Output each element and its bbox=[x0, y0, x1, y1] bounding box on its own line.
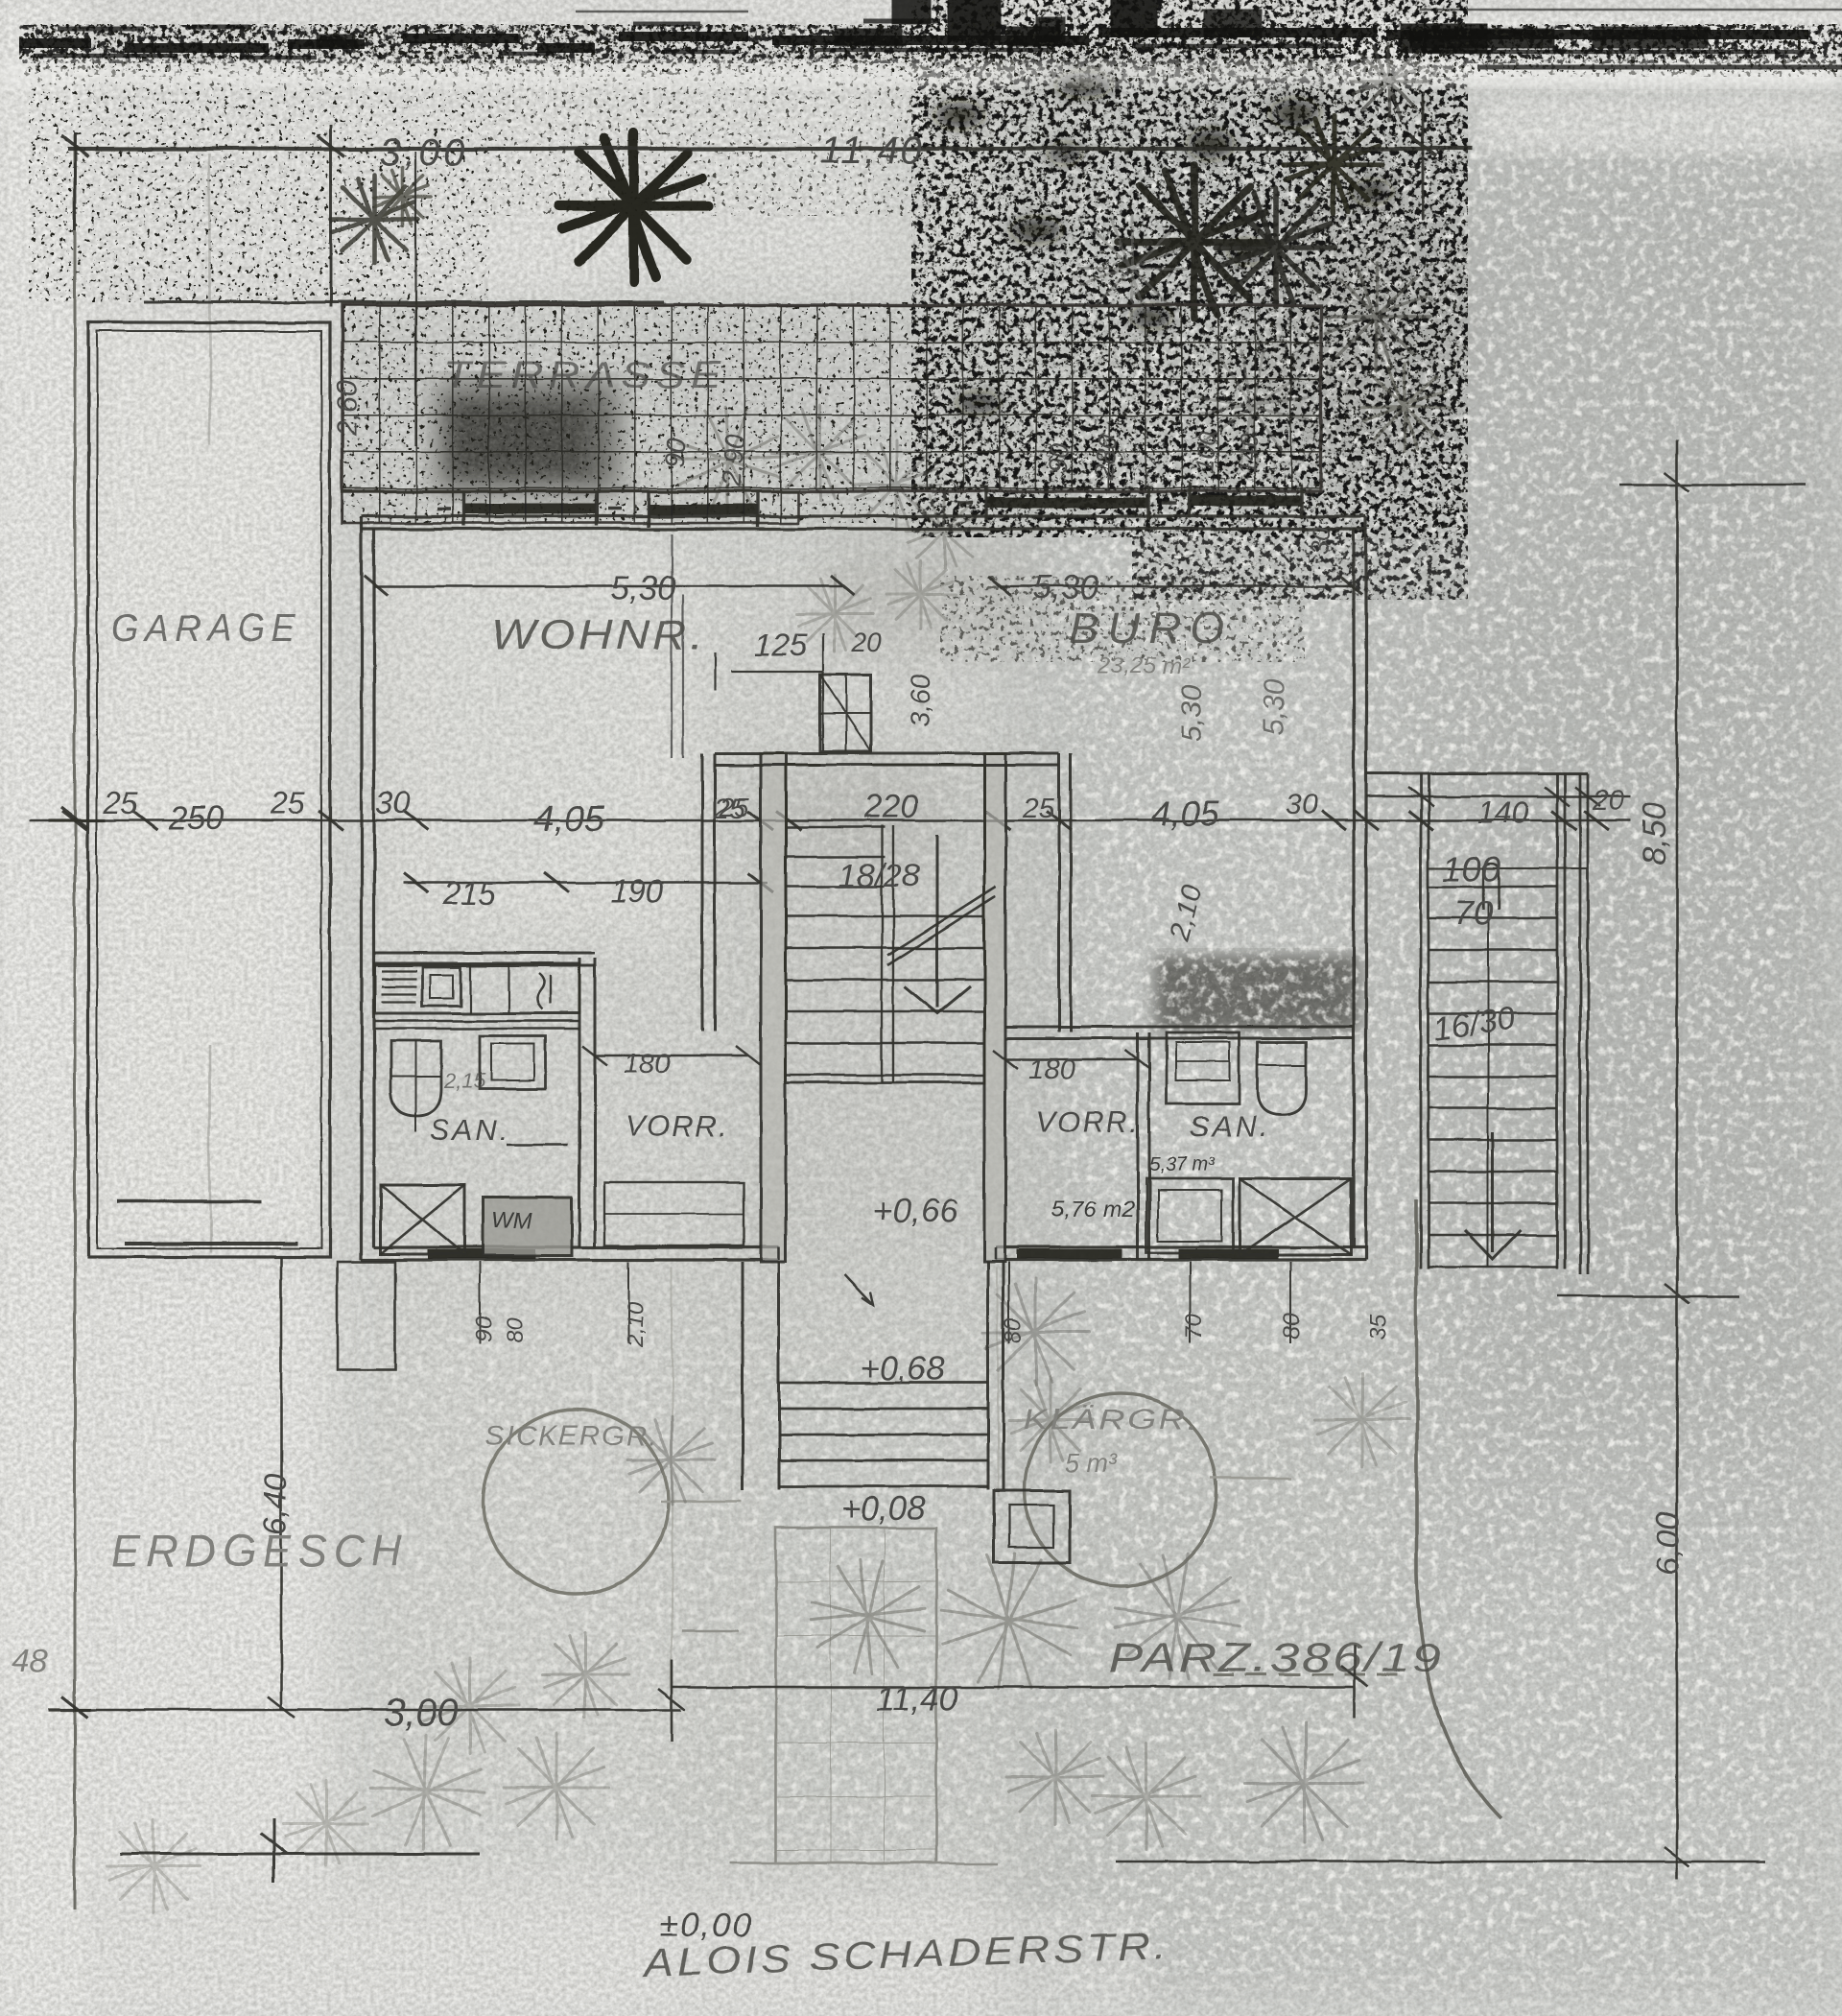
svg-text:WOHNR.: WOHNR. bbox=[491, 612, 706, 658]
svg-text:25: 25 bbox=[1022, 793, 1055, 824]
svg-text:25: 25 bbox=[103, 786, 138, 820]
svg-text:140: 140 bbox=[1477, 795, 1529, 830]
svg-text:KLÄRGR.: KLÄRGR. bbox=[1023, 1404, 1200, 1435]
svg-text:125: 125 bbox=[754, 628, 808, 663]
svg-text:BÜRO: BÜRO bbox=[1069, 604, 1234, 652]
svg-text:5,30: 5,30 bbox=[610, 570, 676, 607]
svg-text:3,60: 3,60 bbox=[905, 675, 934, 727]
svg-text:30: 30 bbox=[1286, 789, 1318, 820]
svg-text:100: 100 bbox=[1443, 849, 1500, 889]
svg-text:5,30: 5,30 bbox=[1033, 569, 1099, 606]
svg-text:3,00: 3,00 bbox=[379, 131, 469, 174]
svg-text:25: 25 bbox=[719, 792, 750, 821]
svg-text:6,00: 6,00 bbox=[1650, 1512, 1687, 1576]
svg-text:70: 70 bbox=[1181, 1314, 1207, 1340]
svg-text:220: 220 bbox=[863, 789, 919, 825]
svg-text:4,05: 4,05 bbox=[1151, 794, 1219, 833]
svg-text:VORR.: VORR. bbox=[626, 1109, 729, 1143]
svg-text:GARAGE: GARAGE bbox=[111, 607, 301, 650]
svg-text:18/28: 18/28 bbox=[838, 858, 920, 894]
svg-text:180: 180 bbox=[624, 1049, 670, 1079]
svg-text:23,25 m²: 23,25 m² bbox=[1098, 653, 1191, 679]
svg-text:11,40: 11,40 bbox=[820, 130, 923, 172]
svg-text:+0,68: +0,68 bbox=[860, 1350, 945, 1387]
svg-text:30: 30 bbox=[376, 786, 411, 820]
svg-text:6,40: 6,40 bbox=[257, 1473, 293, 1535]
svg-text:2,90: 2,90 bbox=[717, 433, 751, 488]
svg-text:2,60: 2,60 bbox=[332, 380, 364, 438]
svg-text:190: 190 bbox=[610, 873, 664, 909]
svg-text:SAN.: SAN. bbox=[1190, 1109, 1270, 1143]
svg-text:5,30: 5,30 bbox=[1176, 684, 1208, 741]
svg-text:30: 30 bbox=[1305, 525, 1335, 556]
svg-text:8,50: 8,50 bbox=[1637, 802, 1673, 866]
svg-text:90: 90 bbox=[471, 1316, 497, 1341]
svg-text:3,00: 3,00 bbox=[384, 1692, 459, 1734]
svg-text:11,40: 11,40 bbox=[876, 1680, 958, 1718]
svg-text:+0,66: +0,66 bbox=[873, 1193, 958, 1230]
svg-text:80: 80 bbox=[1279, 1314, 1305, 1340]
svg-text:5,30: 5,30 bbox=[1259, 678, 1290, 735]
svg-text:4,05: 4,05 bbox=[533, 799, 605, 840]
svg-text:TERRASSE: TERRASSE bbox=[443, 354, 726, 396]
svg-text:2,10: 2,10 bbox=[623, 1302, 649, 1348]
svg-text:SAN.: SAN. bbox=[430, 1113, 510, 1147]
svg-text:35: 35 bbox=[1365, 1314, 1391, 1340]
svg-text:180: 180 bbox=[1028, 1055, 1074, 1085]
svg-text:20: 20 bbox=[1592, 785, 1625, 817]
svg-text:5,76 m2: 5,76 m2 bbox=[1051, 1197, 1135, 1222]
svg-text:20: 20 bbox=[851, 627, 883, 656]
svg-text:250: 250 bbox=[168, 800, 224, 837]
svg-text:5 m³: 5 m³ bbox=[1065, 1449, 1118, 1478]
svg-text:2,15: 2,15 bbox=[443, 1069, 486, 1093]
svg-text:80: 80 bbox=[503, 1317, 529, 1343]
svg-text:70: 70 bbox=[1454, 893, 1493, 933]
svg-text:90: 90 bbox=[659, 436, 692, 468]
svg-text:WM: WM bbox=[491, 1208, 532, 1234]
svg-text:25: 25 bbox=[270, 786, 305, 820]
svg-text:48: 48 bbox=[12, 1643, 48, 1679]
svg-text:VORR.: VORR. bbox=[1036, 1105, 1140, 1139]
svg-text:5,37 m³: 5,37 m³ bbox=[1149, 1154, 1216, 1175]
svg-text:+0,08: +0,08 bbox=[840, 1490, 926, 1528]
svg-text:80: 80 bbox=[1001, 1317, 1027, 1343]
svg-text:PARZ.386/19: PARZ.386/19 bbox=[1108, 1635, 1444, 1681]
svg-text:215: 215 bbox=[442, 875, 497, 911]
svg-text:SICKERGR.: SICKERGR. bbox=[485, 1421, 658, 1452]
